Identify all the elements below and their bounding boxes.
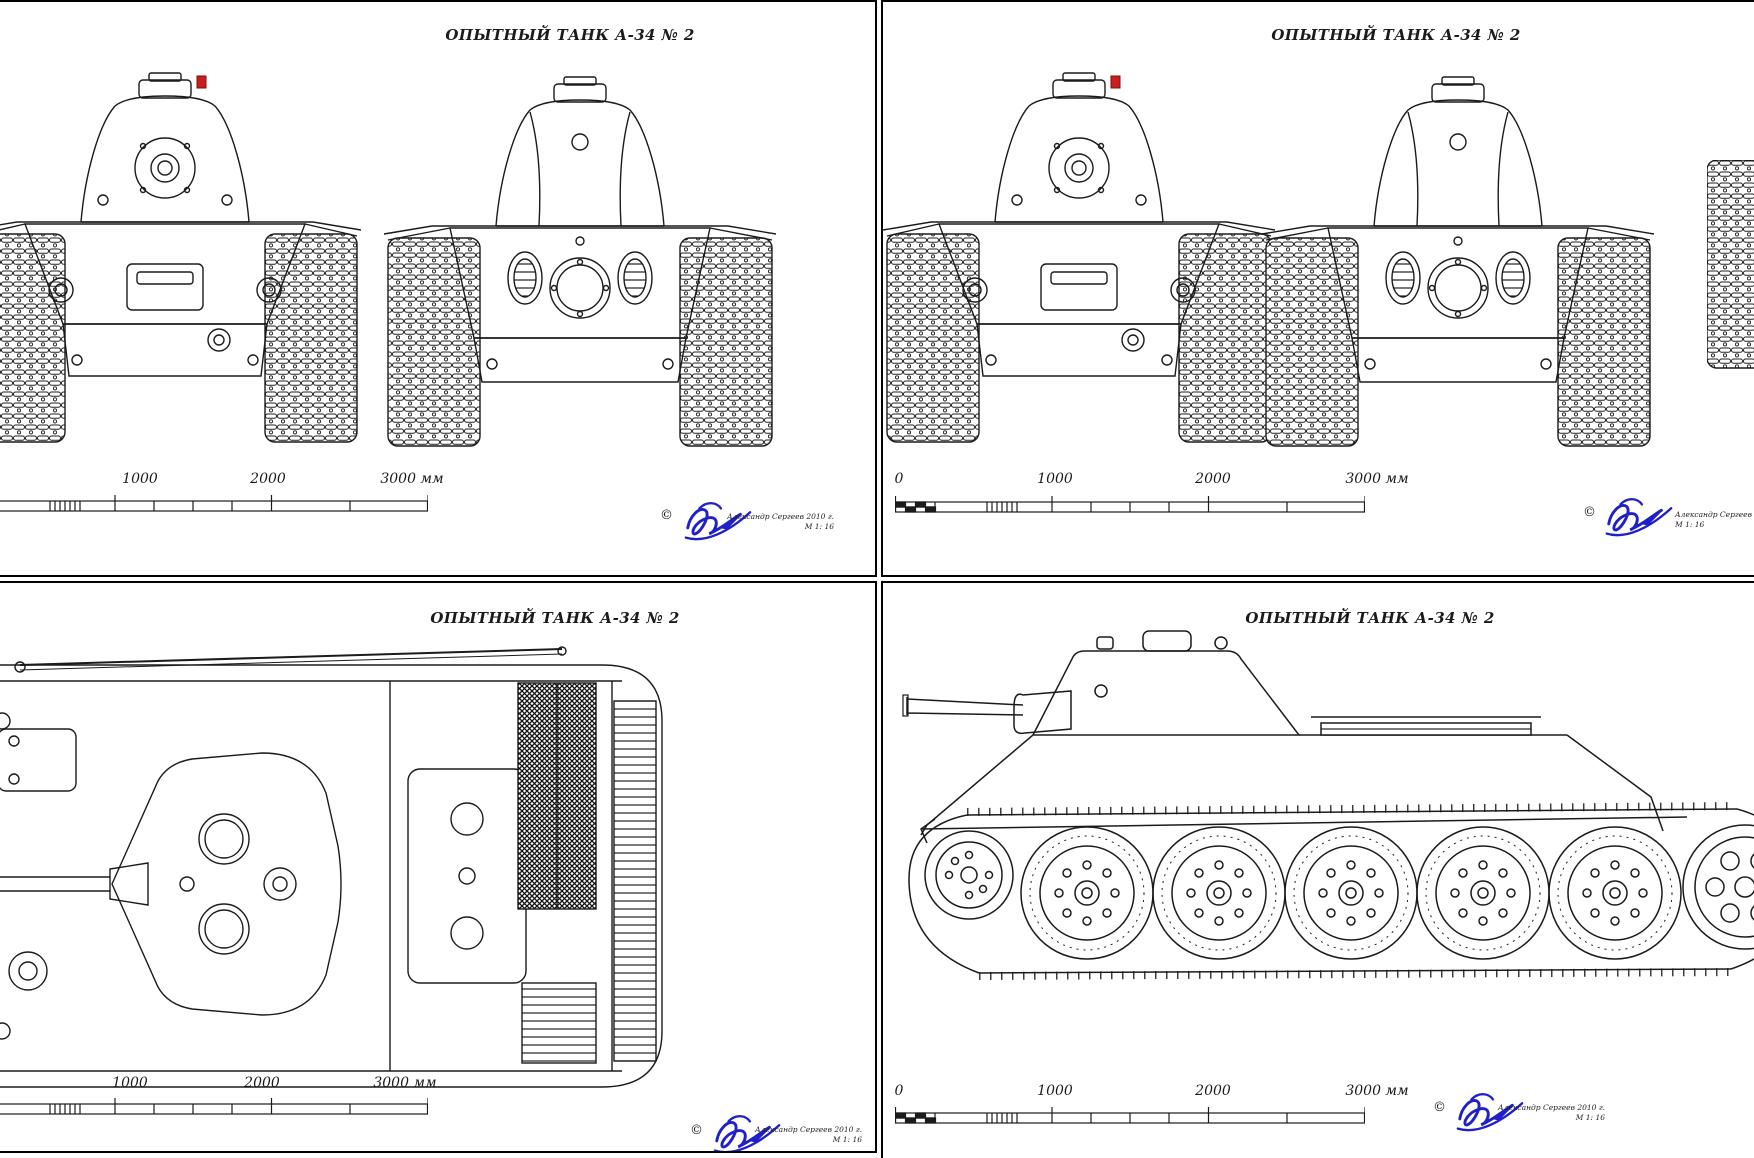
tank-front-view-drawing — [881, 72, 1279, 452]
scale-label-2000: 2000 — [1178, 1083, 1248, 1099]
credit-scale-note: М 1: 16 — [688, 522, 834, 532]
copyright-symbol: © — [690, 1123, 703, 1138]
sheet-side-view: ОПЫТНЫЙ ТАНК А-34 № 2 0 1000 2000 3000 м… — [881, 581, 1754, 1158]
tank-rear-view-drawing — [380, 76, 780, 456]
partial-track-drawing — [1707, 160, 1754, 370]
sheet-front-rear-views: ОПЫТНЫЙ ТАНК А-34 № 2 1000 2000 3000 мм … — [0, 0, 877, 577]
scale-label-3000: 3000 мм — [1322, 1083, 1432, 1099]
scale-label-0: 0 — [881, 1083, 934, 1099]
credit-scale-note: М 1: 16 — [1459, 1113, 1605, 1123]
copyright-symbol: © — [1583, 505, 1596, 520]
credit-block: Александр Сергеев 2010 г. М 1: 16 — [688, 512, 834, 532]
blueprint-collage: ОПЫТНЫЙ ТАНК А-34 № 2 1000 2000 3000 мм … — [0, 0, 1754, 1158]
scale-label-1000: 1000 — [1020, 1083, 1090, 1099]
sheet-plan-view: ОПЫТНЫЙ ТАНК А-34 № 2 1000 2000 3000 мм … — [0, 581, 877, 1153]
copyright-symbol: © — [660, 508, 673, 523]
tank-plan-view-drawing — [0, 641, 782, 1111]
scale-label-2000: 2000 — [227, 1075, 297, 1091]
tank-front-view-drawing — [0, 72, 365, 452]
credit-block: Александр Сергеев 2010 г. М 1: 16 — [716, 1125, 862, 1145]
credit-block: Александр Сергеев 2010 г. М 1: 16 — [1459, 1103, 1605, 1123]
scale-bar — [895, 496, 1365, 516]
sheet-title: ОПЫТНЫЙ ТАНК А-34 № 2 — [430, 26, 710, 44]
scale-bar — [0, 495, 428, 515]
scale-label-2000: 2000 — [233, 471, 303, 487]
tank-side-view-drawing — [891, 629, 1754, 1049]
sheet-front-rear-views-2: ОПЫТНЫЙ ТАНК А-34 № 2 0 1000 2000 3000 м… — [881, 0, 1754, 577]
credit-author: Александр Сергеев 2010 г. — [727, 512, 834, 521]
sheet-title: ОПЫТНЫЙ ТАНК А-34 № 2 — [415, 609, 695, 627]
copyright-symbol: © — [1433, 1100, 1446, 1115]
credit-scale-note: М 1: 16 — [716, 1135, 862, 1145]
scale-label-1000: 1000 — [1020, 471, 1090, 487]
scale-label-0: 0 — [881, 471, 934, 487]
scale-label-1000: 1000 — [105, 471, 175, 487]
scale-bar — [0, 1098, 428, 1118]
sheet-title: ОПЫТНЫЙ ТАНК А-34 № 2 — [1230, 609, 1510, 627]
scale-label-3000: 3000 мм — [357, 471, 467, 487]
tank-rear-view-drawing — [1258, 76, 1658, 456]
credit-block: Александр Сергеев 2010 г. М 1: 16 — [1675, 510, 1754, 530]
credit-author: Александр Сергеев 2010 г. — [1498, 1103, 1605, 1112]
artist-signature — [1599, 494, 1677, 544]
sheet-title: ОПЫТНЫЙ ТАНК А-34 № 2 — [1256, 26, 1536, 44]
scale-bar — [895, 1107, 1365, 1127]
scale-label-3000: 3000 мм — [350, 1075, 460, 1091]
scale-label-1000: 1000 — [95, 1075, 165, 1091]
credit-author: Александр Сергеев 2010 г. — [1675, 510, 1754, 519]
credit-author: Александр Сергеев 2010 г. — [755, 1125, 862, 1134]
scale-label-2000: 2000 — [1178, 471, 1248, 487]
scale-label-3000: 3000 мм — [1322, 471, 1432, 487]
credit-scale-note: М 1: 16 — [1675, 520, 1754, 530]
